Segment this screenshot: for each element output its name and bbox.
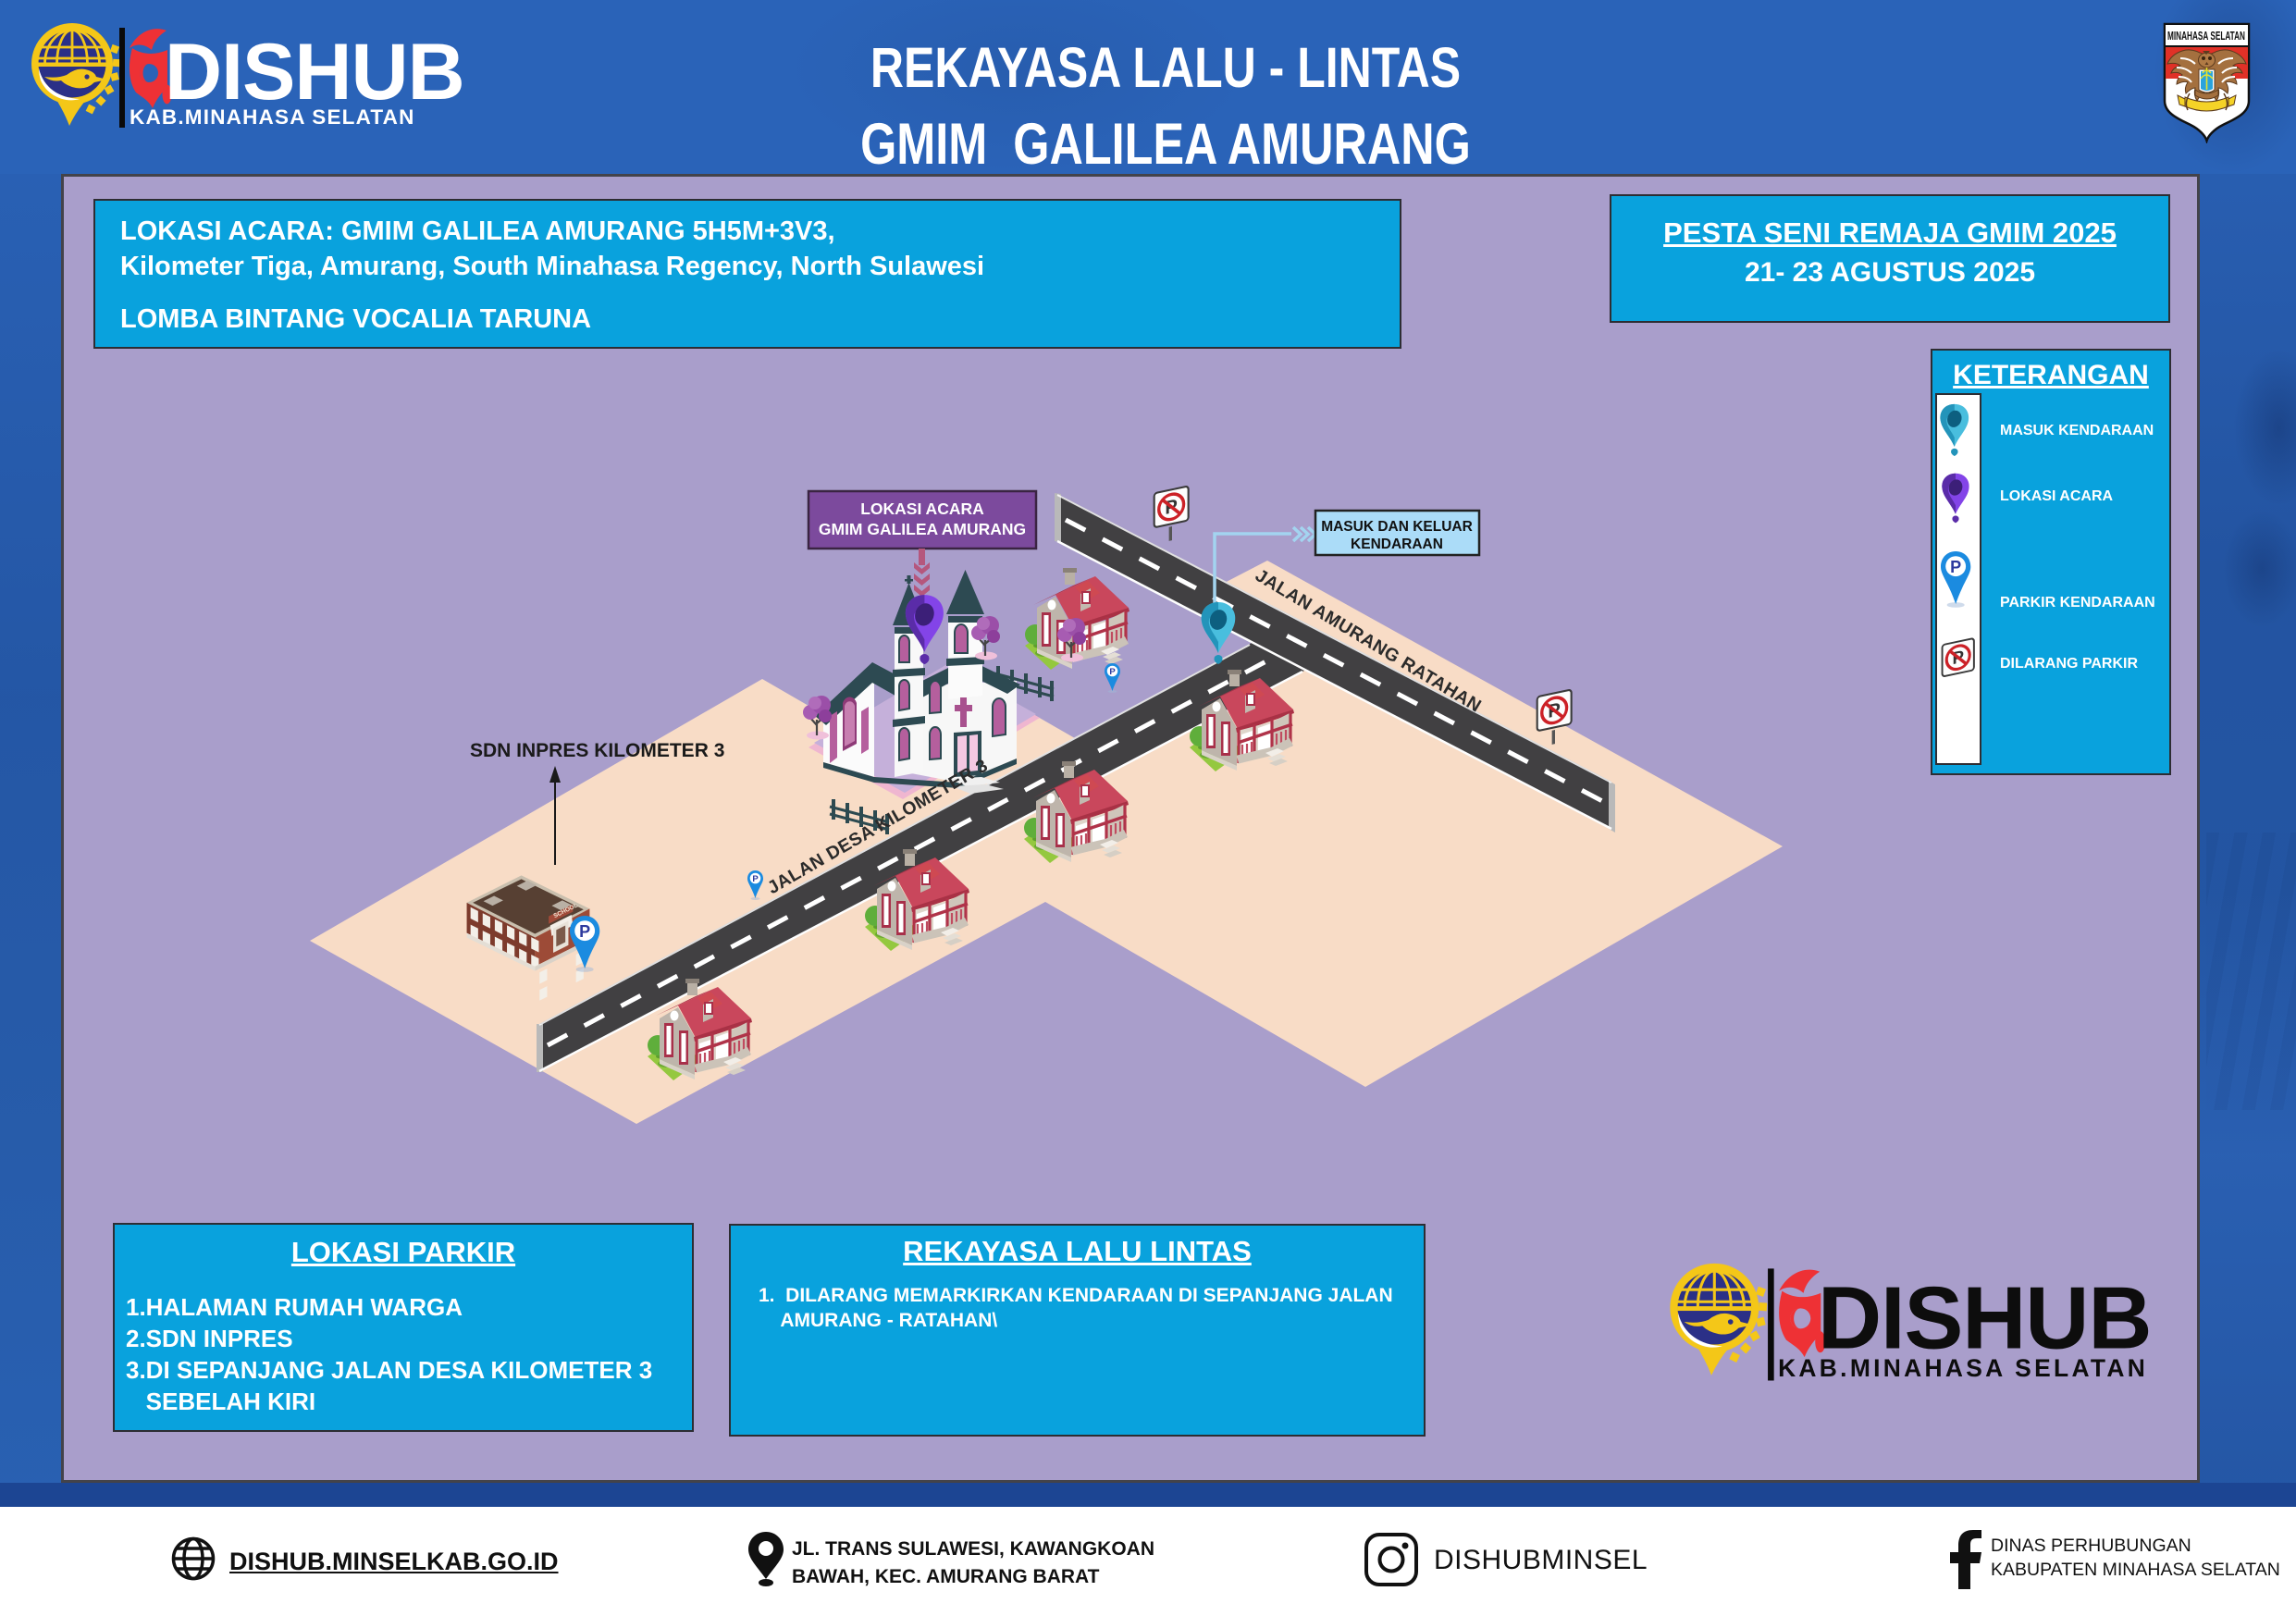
svg-text:GMIM GALILEA AMURANG: GMIM GALILEA AMURANG [819, 520, 1026, 538]
svg-text:SDN INPRES KILOMETER 3: SDN INPRES KILOMETER 3 [470, 740, 724, 761]
svg-text:KENDARAAN: KENDARAAN [1351, 537, 1443, 552]
svg-text:DISHUB: DISHUB [1818, 1268, 2151, 1367]
svg-text:MASUK DAN KELUAR: MASUK DAN KELUAR [1321, 519, 1473, 535]
svg-text:KAB.MINAHASA SELATAN: KAB.MINAHASA SELATAN [1778, 1354, 2148, 1382]
svg-text:LOKASI ACARA: LOKASI ACARA [860, 500, 984, 518]
